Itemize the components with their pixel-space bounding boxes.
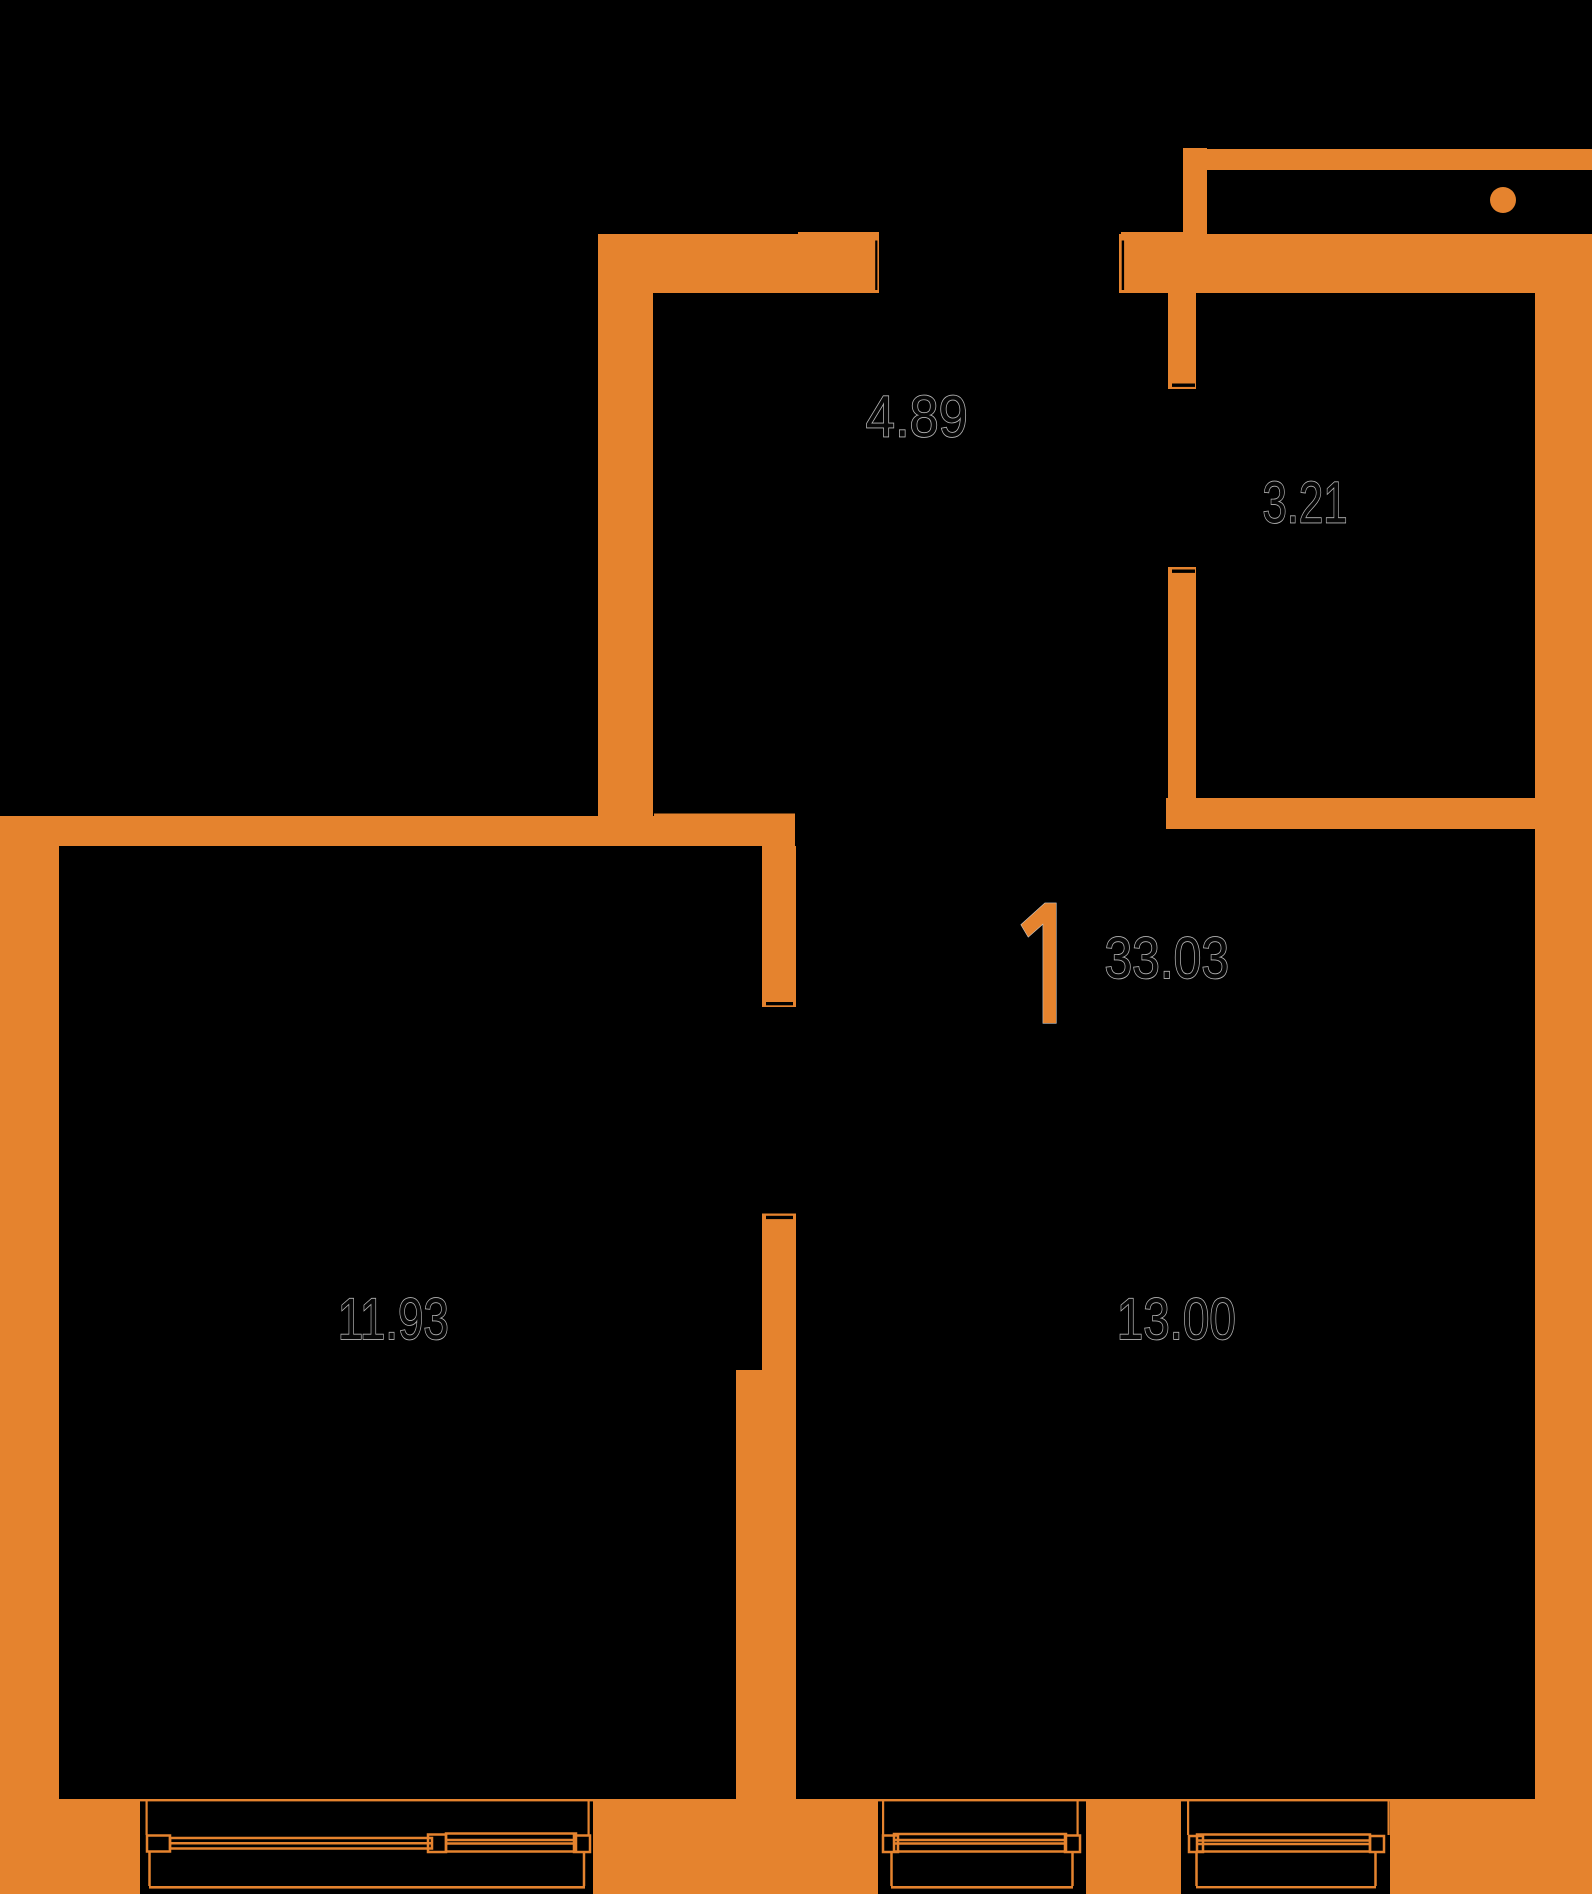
svg-text:3.21: 3.21: [1263, 470, 1348, 535]
svg-text:11.93: 11.93: [338, 1287, 449, 1352]
svg-text:4.89: 4.89: [866, 385, 968, 450]
svg-text:13.00: 13.00: [1117, 1287, 1236, 1352]
svg-text:33.03: 33.03: [1105, 926, 1230, 991]
